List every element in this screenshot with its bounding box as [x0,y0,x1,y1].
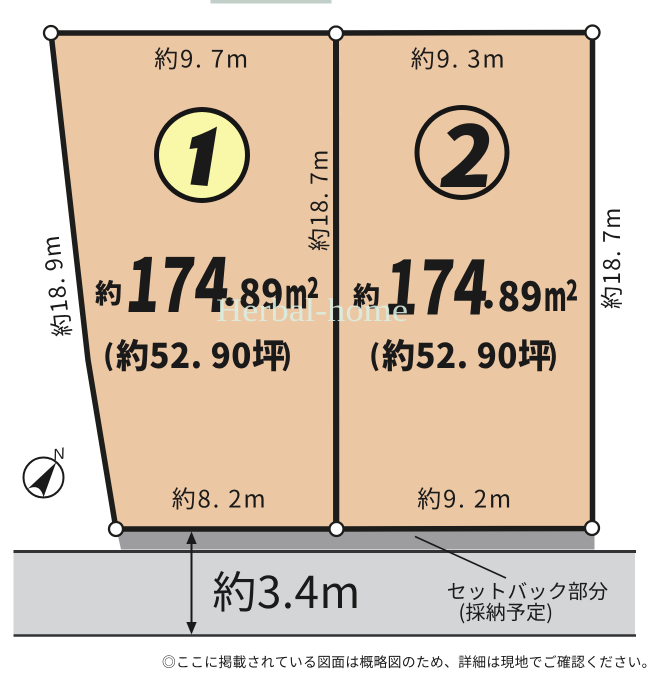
svg-text:Herbal-home: Herbal-home [216,293,408,329]
